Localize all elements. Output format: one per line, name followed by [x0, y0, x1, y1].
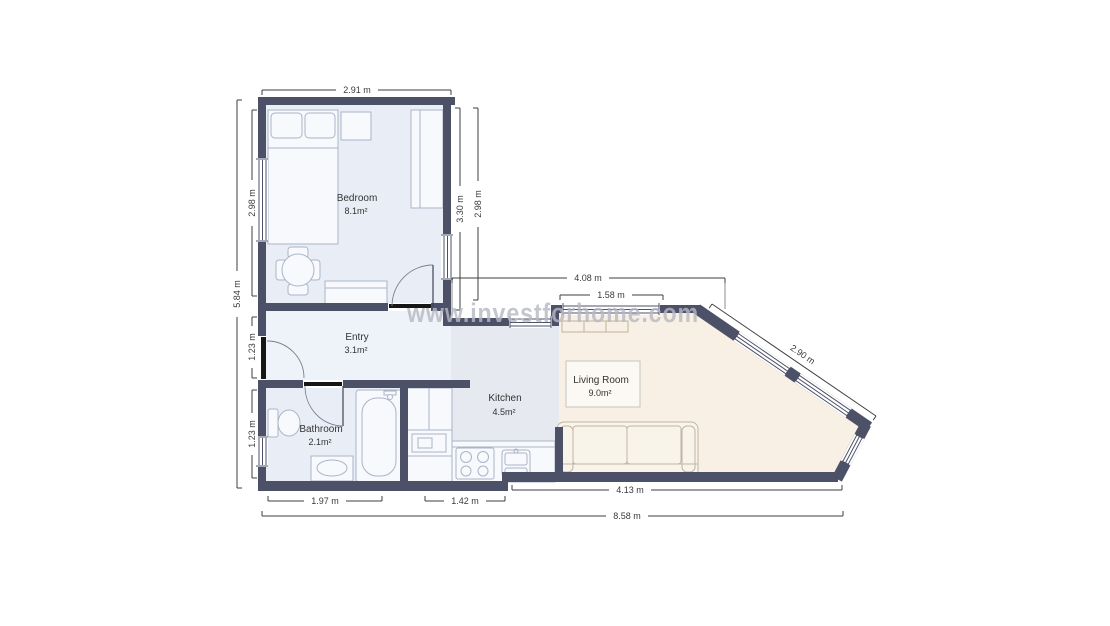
bathroom-right-wall: [400, 380, 408, 481]
dim-right-bedroom-inner: 3.30 m: [454, 108, 466, 310]
kitchen-living-stub-wall: [555, 427, 563, 481]
dim-left-entry: 1.23 m: [246, 317, 258, 378]
dim-bottom-kitchen-label: 1.42 m: [451, 496, 479, 506]
desk: [325, 281, 387, 306]
kitchen-bathroom-bottom-wall: [258, 481, 508, 491]
dim-bottom-bathroom: 1.97 m: [268, 496, 382, 507]
dim-bottom-living: 4.13 m: [512, 485, 842, 496]
double-bed: [268, 110, 338, 244]
living-room-area: 9.0m²: [588, 388, 611, 398]
bathtub: [356, 390, 402, 482]
entry-label: Entry: [345, 332, 368, 343]
dim-left-bathroom-label: 1.23 m: [247, 420, 257, 448]
floor-plan-page: 2.91 m 5.84 m 2.98 m 1.23 m: [0, 0, 1110, 626]
toilet: [268, 409, 300, 437]
dim-left-entry-label: 1.23 m: [247, 333, 257, 361]
wardrobe: [411, 110, 443, 208]
dim-left-bedroom: 2.98 m: [246, 110, 258, 296]
dim-right-bedroom-inner-label: 3.30 m: [455, 195, 465, 223]
bedroom-label: Bedroom: [337, 193, 378, 204]
living-room-label: Living Room: [573, 375, 629, 386]
entry-area: 3.1m²: [344, 345, 367, 355]
dim-right-bedroom-outer: 2.98 m: [472, 108, 484, 300]
floor-plan: 2.91 m 5.84 m 2.98 m 1.23 m: [0, 0, 1110, 626]
bathroom-top-wall-left: [262, 380, 303, 388]
dim-left-total-label: 5.84 m: [232, 280, 242, 308]
dim-left-bedroom-label: 2.98 m: [247, 189, 257, 217]
bathroom-area: 2.1m²: [308, 437, 331, 447]
living-bottom-wall: [502, 472, 838, 482]
nightstand: [341, 112, 371, 140]
bathroom-label: Bathroom: [299, 424, 342, 435]
dim-bottom-kitchen: 1.42 m: [425, 496, 505, 507]
left-exterior-wall: [258, 97, 266, 488]
bedroom-right-window: [441, 234, 453, 280]
watermark-text: www.investforhome.com: [406, 298, 699, 328]
kitchen-area: 4.5m²: [492, 407, 515, 417]
kitchen-label: Kitchen: [488, 393, 521, 404]
sofa: [557, 422, 698, 478]
dim-right-bedroom-outer-label: 2.98 m: [473, 190, 483, 218]
dim-bottom-living-label: 4.13 m: [616, 485, 644, 495]
fridge-cabinet-unit: [406, 388, 452, 482]
dim-bottom-total-label: 8.58 m: [613, 511, 641, 521]
dim-left-total: 5.84 m: [231, 100, 243, 488]
bathroom-sink: [311, 456, 353, 481]
bedroom-area: 8.1m²: [344, 206, 367, 216]
dim-bottom-bathroom-label: 1.97 m: [311, 496, 339, 506]
bedroom-top-wall: [258, 97, 455, 105]
bedroom-bottom-wall: [262, 303, 390, 311]
dim-top-living-label: 4.08 m: [574, 273, 602, 283]
bedroom-right-wall: [443, 97, 451, 318]
dim-top-width: 2.91 m: [262, 84, 451, 95]
dim-top-width-label: 2.91 m: [343, 85, 371, 95]
dim-bottom-total: 8.58 m: [262, 511, 843, 522]
